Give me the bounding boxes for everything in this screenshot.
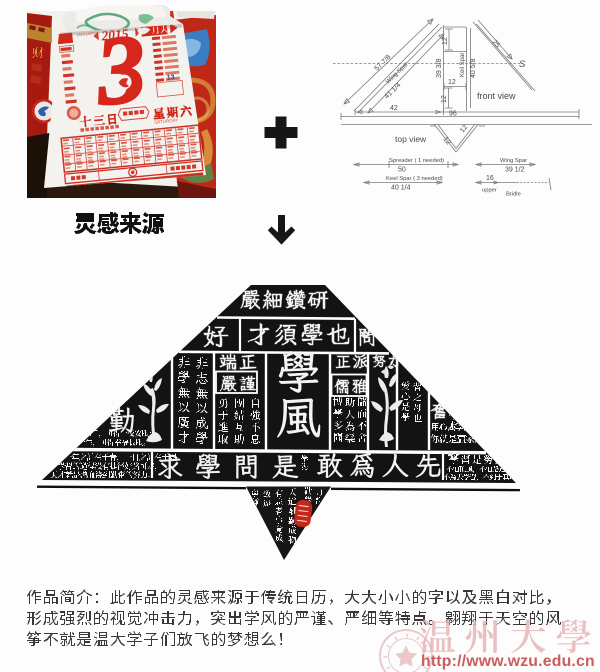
svg-text:Wing Spar: Wing Spar [500, 158, 527, 164]
svg-text:top view: top view [395, 134, 427, 144]
svg-text:12: 12 [441, 95, 448, 103]
svg-text:Keel Spar ( 3 needed): Keel Spar ( 3 needed) [386, 176, 443, 182]
svg-text:39 3/8: 39 3/8 [436, 58, 443, 78]
svg-text:25: 25 [490, 39, 500, 50]
svg-text:Bridle: Bridle [506, 192, 521, 198]
svg-text:39 1/2: 39 1/2 [505, 167, 525, 174]
svg-text:50: 50 [398, 167, 406, 174]
svg-text:13: 13 [167, 74, 176, 82]
svg-text:Spreader ( 1 needed): Spreader ( 1 needed) [389, 158, 444, 164]
svg-text:S: S [519, 59, 526, 70]
svg-text:42: 42 [390, 105, 398, 112]
svg-text:Keil Spar: Keil Spar [460, 53, 466, 77]
svg-text:40 1/4: 40 1/4 [391, 185, 411, 192]
svg-text:front view: front view [477, 91, 516, 101]
svg-text:http://www.wzu.edu.cn: http://www.wzu.edu.cn [421, 653, 595, 670]
svg-text:40 5/8: 40 5/8 [470, 58, 477, 78]
svg-text:12: 12 [442, 37, 449, 45]
svg-text:12: 12 [448, 79, 456, 86]
svg-text:upper: upper [482, 188, 497, 194]
svg-text:41 1/4: 41 1/4 [384, 82, 403, 101]
svg-text:96: 96 [449, 111, 457, 118]
svg-text:16: 16 [486, 175, 494, 182]
